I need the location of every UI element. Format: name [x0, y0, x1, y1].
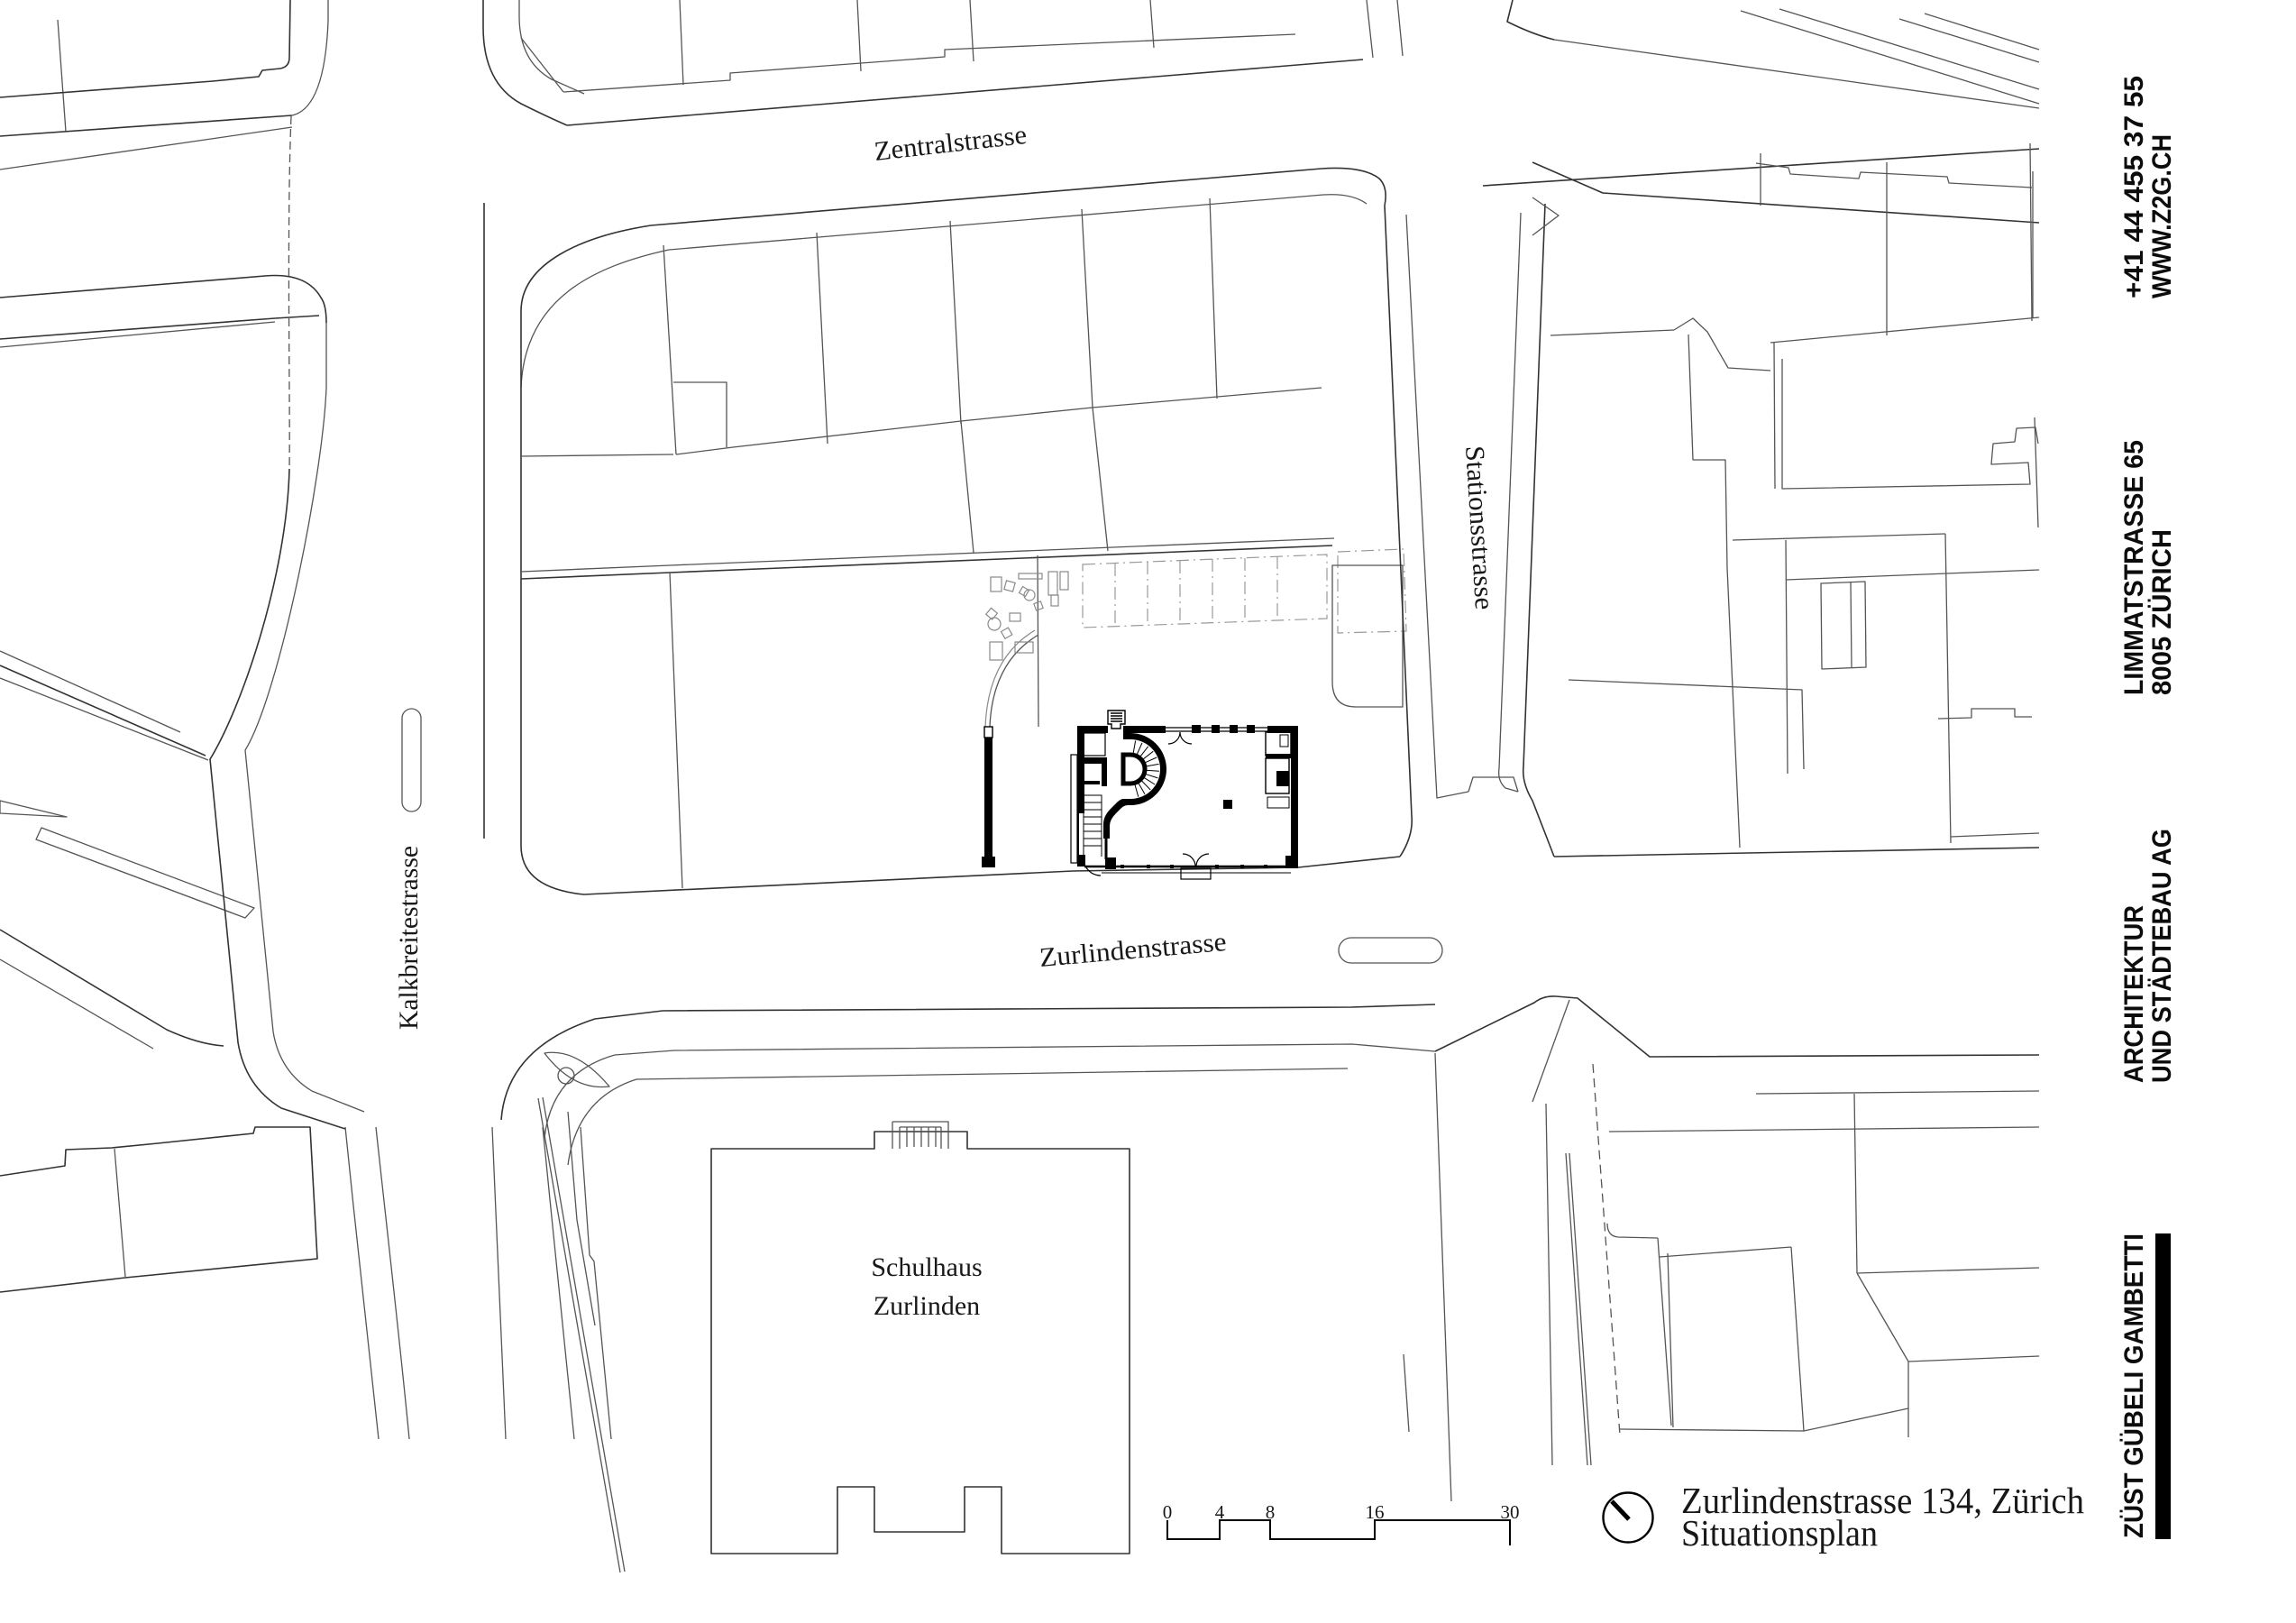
svg-text:UND STÄDTEBAU AG: UND STÄDTEBAU AG [2147, 829, 2177, 1083]
svg-text:Zurlinden: Zurlinden [874, 1291, 980, 1321]
svg-text:WWW.Z2G.CH: WWW.Z2G.CH [2147, 134, 2177, 298]
svg-text:8: 8 [1266, 1501, 1276, 1523]
svg-text:+41 44 455 37 55: +41 44 455 37 55 [2119, 76, 2149, 298]
svg-text:ZÜST GÜBELI GAMBETTI: ZÜST GÜBELI GAMBETTI [2119, 1233, 2149, 1538]
svg-text:30: 30 [1501, 1501, 1520, 1523]
svg-text:ARCHITEKTUR: ARCHITEKTUR [2119, 905, 2149, 1083]
svg-text:0: 0 [1163, 1501, 1173, 1523]
svg-text:Situationsplan: Situationsplan [1681, 1512, 1878, 1554]
svg-text:LIMMATSTRASSE 65: LIMMATSTRASSE 65 [2119, 440, 2149, 695]
svg-text:8005 ZÜRICH: 8005 ZÜRICH [2147, 529, 2177, 695]
svg-text:Kalkbreitestrasse: Kalkbreitestrasse [394, 846, 424, 1030]
svg-text:4: 4 [1215, 1501, 1225, 1523]
svg-text:Schulhaus: Schulhaus [871, 1252, 982, 1282]
svg-text:16: 16 [1366, 1501, 1385, 1523]
